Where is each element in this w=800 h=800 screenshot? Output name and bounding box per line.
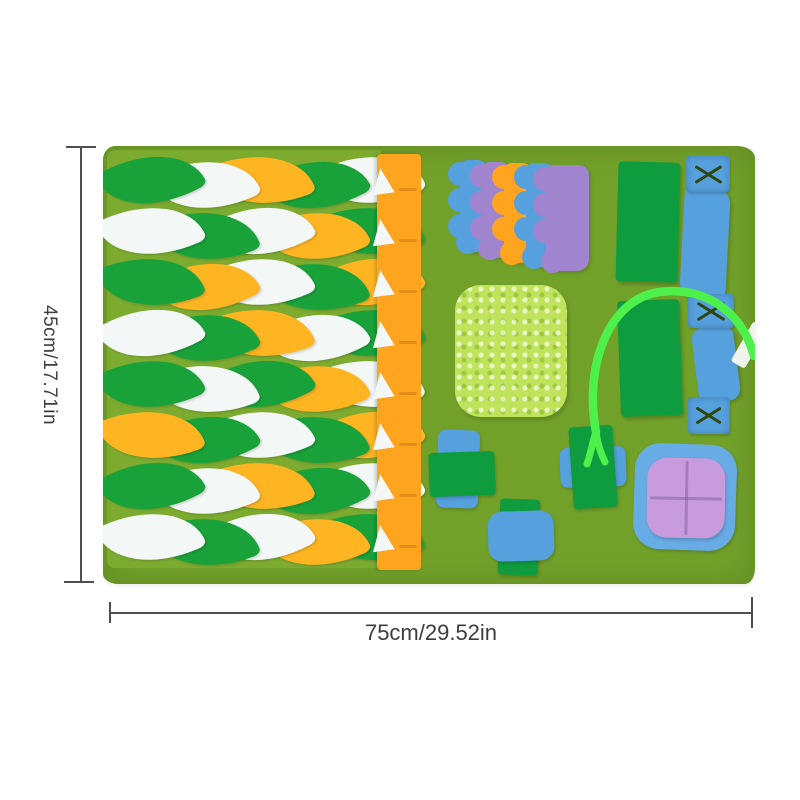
scallop-bump xyxy=(492,217,516,241)
scallop-bump xyxy=(533,193,557,217)
slit-mark xyxy=(399,545,417,548)
scallop-bump xyxy=(448,162,472,186)
slit-mark xyxy=(399,239,417,242)
scallop-bump xyxy=(533,219,557,243)
height-dimension-cap-bottom xyxy=(64,581,94,583)
blue-strap-band-upper xyxy=(679,185,731,303)
slit-mark xyxy=(399,290,417,293)
scallop-bump xyxy=(470,190,494,214)
height-label-text: 45cm/17.71in xyxy=(38,305,60,425)
x-stitch-tab-middle xyxy=(688,294,734,328)
snuffle-mat xyxy=(103,146,755,584)
width-dimension-label: 75cm/29.52in xyxy=(110,620,752,646)
slit-mark xyxy=(399,188,417,191)
slit-mark xyxy=(399,341,417,344)
pinwheel-pillow-top xyxy=(646,457,725,538)
blue-strap-band-lower xyxy=(691,324,742,405)
strap-green-over-blue xyxy=(568,425,618,510)
scallop-bump xyxy=(492,191,516,215)
width-dimension-line xyxy=(110,612,752,614)
scallop-bump xyxy=(492,165,516,189)
x-stitch-tab-top xyxy=(686,156,730,192)
pillow-seam xyxy=(684,461,688,535)
height-dimension-label: 45cm/17.71in xyxy=(32,147,66,583)
height-dimension-line xyxy=(80,147,82,583)
height-dimension-cap-top xyxy=(66,146,96,148)
slit-mark xyxy=(399,392,417,395)
strap-blue-loop xyxy=(487,510,555,562)
leaf-field xyxy=(107,150,381,568)
x-stitch-tab-bottom xyxy=(688,397,730,434)
scallop-bump xyxy=(541,249,565,273)
chenille-pad xyxy=(455,285,567,417)
product-photo-stage: 45cm/17.71in 75cm/29.52in xyxy=(0,0,800,800)
scallop-sheet xyxy=(537,165,589,271)
scallop-bump xyxy=(470,164,494,188)
slit-mark xyxy=(399,494,417,497)
scallop-bump xyxy=(533,167,557,191)
width-label-text: 75cm/29.52in xyxy=(365,620,497,645)
scallop-stack xyxy=(452,158,604,282)
orange-slit-strip xyxy=(377,154,421,570)
scallop-bump xyxy=(448,188,472,212)
felt-pocket-middle xyxy=(617,299,683,417)
felt-pocket-top xyxy=(615,161,680,283)
slit-mark xyxy=(399,443,417,446)
strap-green-loop xyxy=(428,451,495,497)
